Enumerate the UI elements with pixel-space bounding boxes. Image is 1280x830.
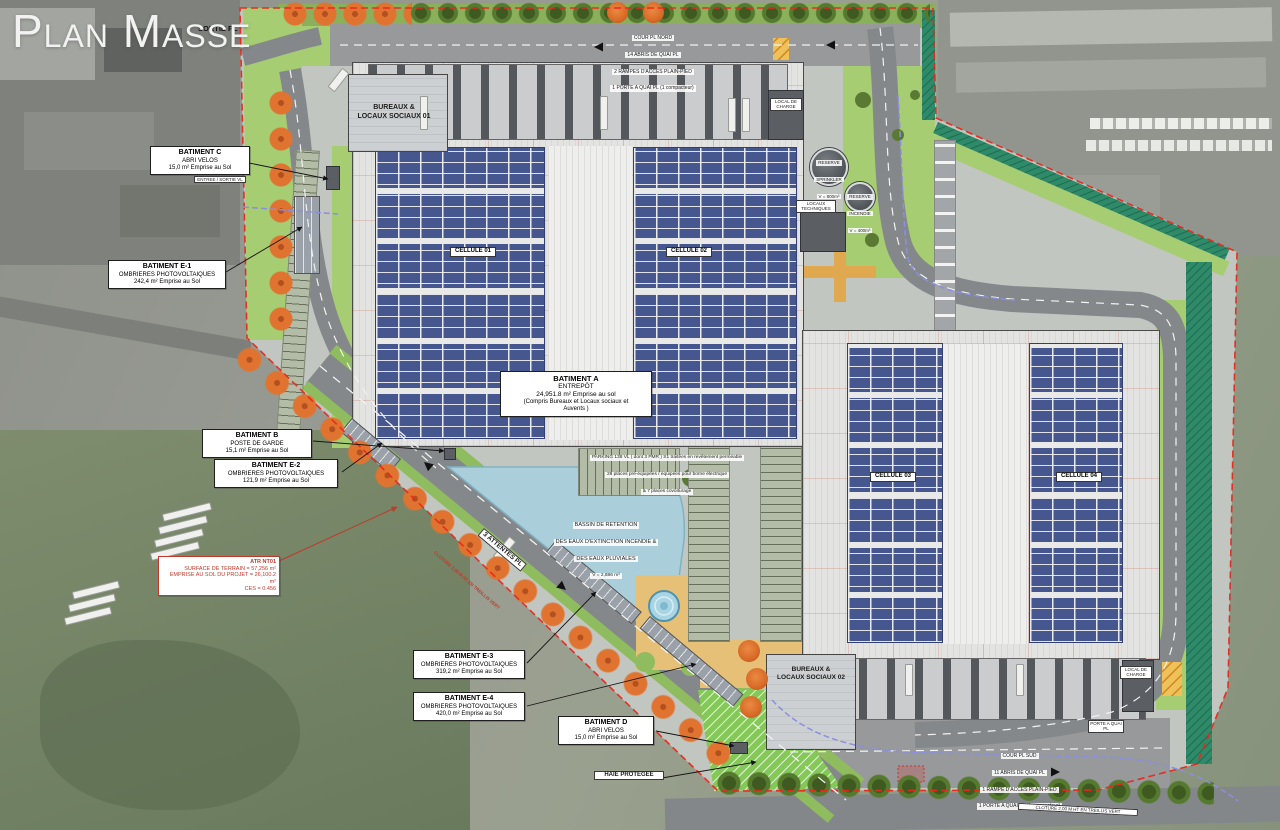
terrain-surface: SURFACE DE TERRAIN = 57,256 m² [162, 566, 276, 573]
annotation-batiment-c: BATIMENT C ABRI VELOS 15,0 m² Emprise au… [150, 146, 250, 175]
page-title: Plan Masse [12, 4, 251, 58]
note-line: 28 places pré-équipées / équipées pour b… [605, 472, 729, 478]
note-line: BASSIN DE RETENTION [573, 522, 640, 529]
note-line: V = 2,886 m³ [590, 573, 622, 579]
terrain-emprise: EMPRISE AU SOL DU PROJET = 26,100.2 m² [162, 572, 276, 585]
note-line: 1 PORTE A QUAI PL (1 compacteur) [610, 85, 695, 91]
annotation-title: BATIMENT A [504, 374, 648, 383]
note-line: 14 ABRIS DE QUAI PL [625, 52, 680, 58]
cour-nord-note: COUR PL NORD 14 ABRIS DE QUAI PL 2 RAMPE… [588, 27, 718, 94]
annotation-title: BATIMENT C [154, 149, 246, 158]
note-line: RESERVE [847, 194, 872, 200]
cellule-02-tag: CELLULE 02 [666, 247, 712, 257]
annotation-area: 15,0 m² Emprise au Sol [562, 735, 650, 742]
annotation-batiment-e2: BATIMENT E-2 OMBRIERES PHOTOVOLTAIQUES 1… [214, 459, 338, 488]
annotation-title: BATIMENT E-1 [112, 263, 222, 272]
note-line: 11 ABRIS DE QUAI PL [992, 770, 1047, 776]
annotation-area: 15,1 m² Emprise au Sol [206, 448, 308, 455]
annotation-subtitle: OMBRIERES PHOTOVOLTAIQUES [218, 471, 334, 478]
plan-masse-canvas: BUREAUX & LOCAUX SOCIAUX 01 BUREAUX & LO… [0, 0, 1280, 830]
note-line: PARKING 138 VL ( dont 3 PMR ) S1 traitée… [590, 455, 744, 461]
note-line: 2 RAMPES D'ACCES PLAIN-PIED [612, 69, 694, 75]
annotation-title: BATIMENT D [562, 719, 650, 728]
local-charge-south-tag: LOCAL DE CHARGE [1120, 666, 1152, 679]
annotation-area: 15,0 m² Emprise au Sol [154, 165, 246, 172]
annotation-subtitle: ENTREPÔT [504, 383, 648, 391]
annotation-batiment-d: BATIMENT D ABRI VELOS 15,0 m² Emprise au… [558, 716, 654, 745]
note-line: 1 RAMPE D'ACCES PLAIN-PIED [980, 787, 1058, 793]
note-line: RESERVE [816, 160, 841, 166]
note-line: INCENDIE [847, 211, 873, 217]
annotation-batiment-e3: BATIMENT E-3 OMBRIERES PHOTOVOLTAIQUES 3… [413, 650, 525, 679]
lane-markings [290, 28, 1176, 800]
cellule-03-tag: CELLULE 03 [870, 472, 916, 482]
annotation-area: 24,951.8 m² Emprise au sol [504, 391, 648, 399]
terrain-ref: ATR NT01 [162, 559, 276, 566]
annotation-batiment-a: BATIMENT A ENTREPÔT 24,951.8 m² Emprise … [500, 371, 652, 417]
annotation-title: BATIMENT E-2 [218, 462, 334, 471]
leader-line-terrain [279, 507, 397, 561]
reserve-incendie-note: RESERVE INCENDIE V = 400m³ [838, 186, 882, 236]
annotation-subtitle: OMBRIERES PHOTOVOLTAIQUES [112, 272, 222, 279]
cellule-04-tag: CELLULE 04 [1056, 472, 1102, 482]
parking-note: PARKING 138 VL ( dont 3 PMR ) S1 traitée… [583, 446, 751, 496]
note-line: & 7 places covoiturage [641, 489, 694, 495]
annotation-subtitle: ABRI VELOS [562, 728, 650, 735]
annotation-terrain: ATR NT01 SURFACE DE TERRAIN = 57,256 m² … [158, 556, 280, 596]
haie-protegee-tag: HAIE PROTEGEE [594, 771, 664, 780]
annotation-area: 242,4 m² Emprise au Sol [112, 279, 222, 286]
note-line: V = 400m³ [848, 228, 873, 234]
annotation-area: 319,2 m² Emprise au Sol [417, 669, 521, 676]
annotation-batiment-e1: BATIMENT E-1 OMBRIERES PHOTOVOLTAIQUES 2… [108, 260, 226, 289]
note-line: DES EAUX PLUVIALES [574, 556, 637, 563]
bassin-note: BASSIN DE RETENTION DES EAUX D'EXTINCTIO… [530, 514, 682, 581]
annotation-title: BATIMENT E-4 [417, 695, 521, 704]
porte-quai-tag: PORTE A QUAI PL [1088, 720, 1124, 733]
annotation-subtitle: ABRI VELOS [154, 158, 246, 165]
annotation-note: Auvents ) [504, 406, 648, 413]
terrain-ces: CES = 0.456 [162, 586, 276, 593]
annotation-title: BATIMENT B [206, 432, 308, 441]
annotation-area: 121,9 m² Emprise au Sol [218, 478, 334, 485]
annotation-note: (Compris Bureaux et Locaux sociaux et [504, 399, 648, 406]
note-line: COUR PL SUD [1001, 753, 1039, 759]
annotation-subtitle: OMBRIERES PHOTOVOLTAIQUES [417, 662, 521, 669]
note-line: COUR PL NORD [632, 35, 674, 41]
annotation-area: 420,0 m² Emprise au Sol [417, 711, 521, 718]
annotation-title: BATIMENT E-3 [417, 653, 521, 662]
locaux-techniques-tag: LOCAUX TECHNIQUES [796, 200, 836, 213]
annotation-batiment-b: BATIMENT B POSTE DE GARDE 15,1 m² Empris… [202, 429, 312, 458]
entree-sortie-vl-tag: ENTREE / SORTIE VL [194, 176, 246, 183]
local-charge-north-tag: LOCAL DE CHARGE [770, 98, 802, 111]
note-line: DES EAUX D'EXTINCTION INCENDIE & [554, 539, 659, 546]
annotation-batiment-e4: BATIMENT E-4 OMBRIERES PHOTOVOLTAIQUES 4… [413, 692, 525, 721]
annotation-subtitle: OMBRIERES PHOTOVOLTAIQUES [417, 704, 521, 711]
plot-boundary [240, 8, 1237, 791]
annotation-subtitle: POSTE DE GARDE [206, 441, 308, 448]
note-line: SPRINKLER [814, 177, 844, 183]
cellule-01-tag: CELLULE 01 [450, 247, 496, 257]
